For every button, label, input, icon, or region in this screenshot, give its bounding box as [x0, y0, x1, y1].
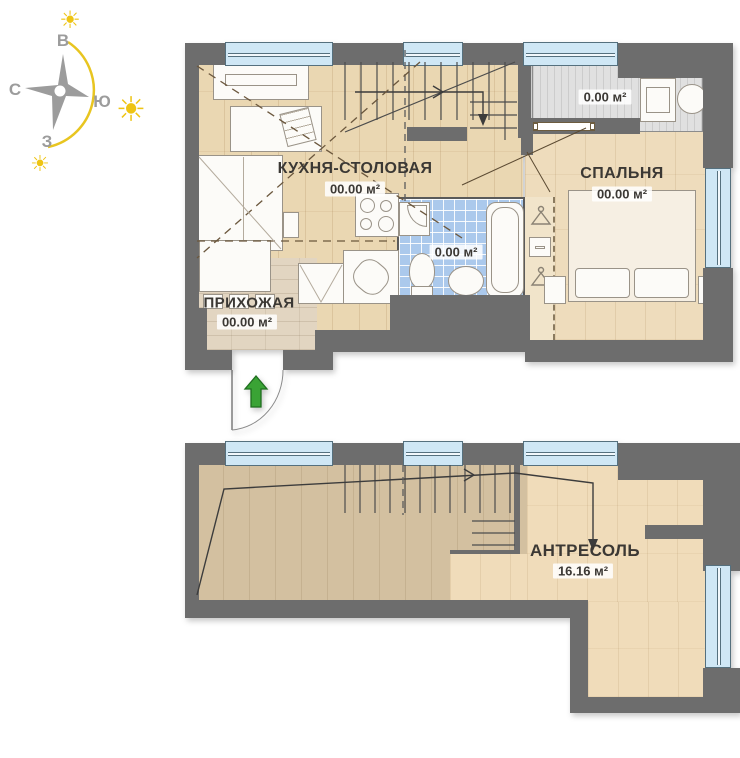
mezzanine-floor-plan: АНТРЕСОЛЬ 16.16 м²	[185, 435, 740, 735]
floor-plan-page: В С Ю З ☀ ☀ ☀	[0, 0, 740, 758]
compass-center	[55, 86, 66, 97]
room-area-mezzanine: 16.16 м²	[553, 564, 613, 579]
room-label-bedroom: СПАЛЬНЯ	[580, 165, 663, 183]
compass-rose: В С Ю З ☀ ☀ ☀	[0, 0, 175, 190]
floor2-linework	[185, 435, 740, 735]
sun-icon: ☀	[116, 91, 146, 129]
entry-arrow-icon	[243, 374, 269, 410]
room-area-bedroom: 00.00 м²	[592, 187, 652, 202]
room-area-laundry: 0.00 м²	[579, 90, 632, 105]
compass-letter-south: Ю	[93, 92, 111, 111]
compass-letter-west: З	[42, 132, 53, 151]
room-area-bathroom: 0.00 м²	[430, 245, 483, 260]
compass-graphic: В С Ю З ☀ ☀ ☀	[0, 0, 175, 190]
compass-letter-north: С	[9, 80, 21, 99]
room-label-kitchen: КУХНЯ-СТОЛОВАЯ	[278, 160, 433, 178]
room-label-hallway: ПРИХОЖАЯ	[203, 295, 294, 312]
sun-icon: ☀	[30, 151, 50, 176]
first-floor-plan: КУХНЯ-СТОЛОВАЯ 00.00 м² СПАЛЬНЯ 00.00 м²…	[185, 40, 733, 432]
room-area-kitchen: 00.00 м²	[325, 182, 385, 197]
sun-icon: ☀	[59, 7, 81, 34]
room-area-hallway: 00.00 м²	[217, 315, 277, 330]
room-label-mezzanine: АНТРЕСОЛЬ	[530, 541, 640, 561]
